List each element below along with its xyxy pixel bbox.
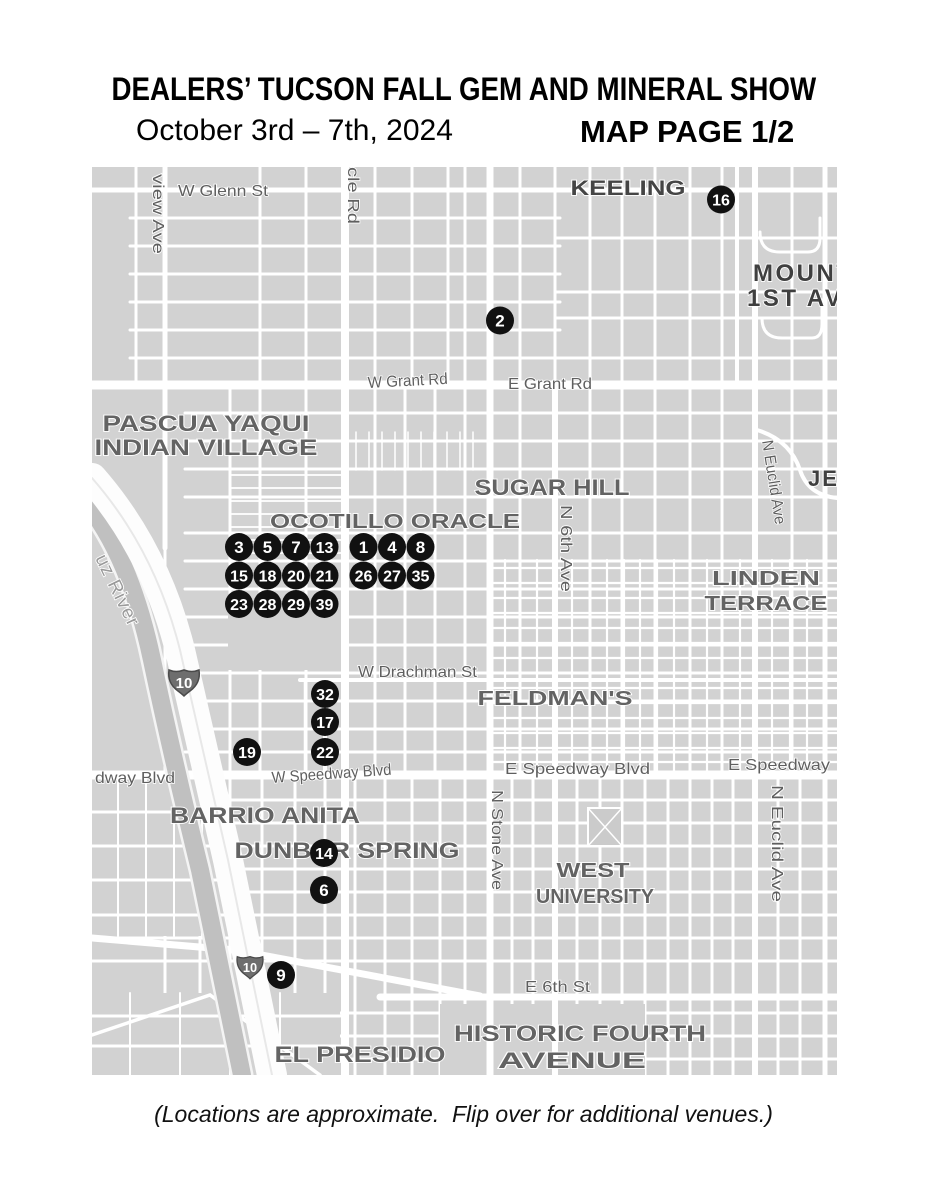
svg-text:E 6th St: E 6th St [525, 979, 591, 996]
svg-text:AVENUE: AVENUE [498, 1048, 646, 1073]
svg-text:9: 9 [276, 966, 285, 985]
svg-text:23: 23 [230, 597, 248, 614]
svg-text:JEF: JEF [808, 466, 837, 491]
svg-text:3: 3 [234, 538, 243, 557]
svg-text:16: 16 [712, 193, 730, 210]
svg-text:cle Rd: cle Rd [344, 167, 361, 224]
svg-text:FELDMAN'S: FELDMAN'S [478, 688, 633, 710]
svg-text:HISTORIC FOURTH: HISTORIC FOURTH [454, 1021, 706, 1046]
svg-text:4: 4 [387, 538, 397, 557]
svg-text:E Speedway Blvd: E Speedway Blvd [505, 761, 650, 778]
svg-text:10: 10 [176, 675, 193, 692]
svg-text:39: 39 [316, 597, 334, 614]
svg-text:10: 10 [243, 960, 257, 975]
svg-text:INDIAN VILLAGE: INDIAN VILLAGE [95, 435, 318, 460]
svg-text:BARRIO ANITA: BARRIO ANITA [170, 803, 360, 828]
svg-text:27: 27 [383, 569, 401, 586]
svg-text:W Drachman St: W Drachman St [358, 664, 478, 681]
svg-text:14: 14 [315, 846, 333, 863]
svg-text:W Glenn St: W Glenn St [178, 183, 269, 200]
svg-text:17: 17 [316, 715, 334, 732]
svg-text:35: 35 [412, 569, 430, 586]
svg-text:29: 29 [287, 597, 305, 614]
svg-text:UNIVERSITY: UNIVERSITY [536, 886, 655, 908]
svg-text:5: 5 [263, 538, 272, 557]
svg-text:1ST AVE: 1ST AVE [747, 285, 837, 312]
svg-text:19: 19 [238, 745, 256, 762]
svg-text:OCOTILLO ORACLE: OCOTILLO ORACLE [270, 511, 520, 533]
svg-text:18: 18 [259, 569, 277, 586]
svg-text:KEELING: KEELING [571, 177, 686, 200]
svg-text:20: 20 [287, 569, 305, 586]
svg-text:view Ave: view Ave [149, 174, 166, 254]
svg-text:N Euclid Ave: N Euclid Ave [768, 785, 785, 902]
svg-text:TERRACE: TERRACE [705, 593, 828, 615]
svg-text:15: 15 [230, 569, 248, 586]
svg-text:26: 26 [355, 569, 373, 586]
svg-text:21: 21 [316, 569, 334, 586]
svg-text:22: 22 [316, 745, 334, 762]
svg-text:28: 28 [259, 597, 277, 614]
svg-text:LINDEN: LINDEN [712, 568, 820, 590]
svg-text:WEST: WEST [557, 860, 630, 882]
svg-text:MOUNT: MOUNT [753, 260, 837, 287]
svg-text:DUNBAR SPRING: DUNBAR SPRING [235, 838, 460, 863]
svg-text:E Speedway: E Speedway [728, 757, 830, 774]
svg-text:7: 7 [291, 538, 300, 557]
svg-text:8: 8 [416, 538, 425, 557]
svg-text:EL PRESIDIO: EL PRESIDIO [275, 1042, 446, 1067]
svg-text:6: 6 [319, 881, 328, 900]
svg-text:2: 2 [495, 312, 504, 331]
svg-text:dway Blvd: dway Blvd [95, 770, 175, 787]
svg-text:PASCUA YAQUI: PASCUA YAQUI [103, 411, 310, 436]
svg-text:E Grant Rd: E Grant Rd [508, 376, 592, 393]
svg-text:N Stone Ave: N Stone Ave [488, 790, 505, 890]
svg-text:SUGAR HILL: SUGAR HILL [475, 475, 630, 500]
svg-text:13: 13 [316, 540, 334, 557]
svg-text:N 6th Ave: N 6th Ave [557, 505, 574, 592]
svg-text:1: 1 [359, 538, 368, 557]
svg-text:32: 32 [316, 687, 334, 704]
